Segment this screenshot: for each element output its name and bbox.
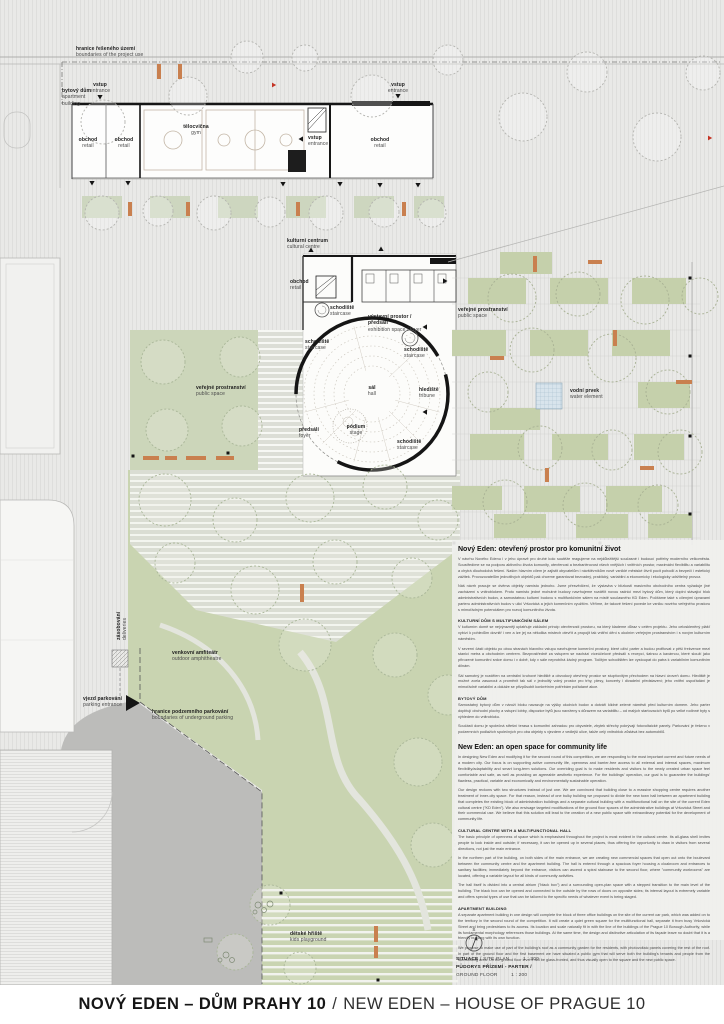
description-heading: BYTOVÝ DŮM [458,696,710,701]
plan-label-kids-playground: dětské hřištěkids playground [290,931,327,944]
existing-building-1 [0,258,60,454]
scale-line-site-plan: SITUACE / SITE PLAN 1 : 300 [456,957,596,962]
plan-label-underground-parking-boundary: hranice podzemního parkováníboundaries o… [152,709,233,722]
description-heading: KULTURNÍ DŮM S MULTIFUNKČNÍM SÁLEM [458,618,710,623]
plan-label-public-space-right: veřejné prostranstvípublic space [458,307,508,320]
plan-label-foyer: předsálífoyer [299,427,319,440]
description-paragraph: Sál samotný je rozdělen na centrální kru… [458,674,710,692]
description-heading: APARTMENT BUILDING [458,906,710,911]
scale-line-ground-floor-en: GROUND FLOOR 1 : 200 [456,973,596,978]
description-paragraph: The hall itself is divided into a centra… [458,883,710,901]
plan-label-stage: pódiumstage [347,424,366,437]
plaza-grid [448,186,724,545]
plan-label-entrance-top-right: vstupentrance [388,82,408,95]
plan-label-retail-1: obchodretail [79,137,98,150]
plan-label-gym: tělocvičnagym [183,124,208,137]
board-title-separator: / [332,995,337,1014]
plan-label-hall: sálhall [368,385,376,398]
plan-label-staircase-left: schodištěstaircase [305,339,329,352]
description-paragraph: V návrhu Nového Edenu i v jeho úpravě pr… [458,557,710,581]
description-paragraph: Náš návrh pracuje se dvěma objekty namís… [458,584,710,613]
project-description: Nový Eden: otevřený prostor pro komunitn… [458,546,710,967]
description-heading: CULTURAL CENTRE WITH A MULTIFUNCTIONAL H… [458,828,710,833]
scale-block: S SITUACE / SITE PLAN 1 : 300 PŮDORYS PŘ… [456,928,596,978]
description-paragraph: V kulturním domě se nejvýrazněji uplatňu… [458,625,710,643]
description-paragraph: Our design reckons with two structures i… [458,788,710,823]
grand-stairs [258,330,304,470]
plan-label-exhibition-space: výstavní prostor / předsálíexhibition sp… [368,314,430,333]
board-title-english: NEW EDEN – HOUSE OF PRAGUE 10 [343,995,645,1014]
plan-label-retail-3: obchodretail [371,137,390,150]
plan-label-project-boundary: hranice řešeného územíboundaries of the … [76,46,143,59]
cultural-centre-plan [303,254,456,476]
description-paragraph: Součástí domu je společná střešní terasa… [458,724,710,736]
plan-label-public-space-left: veřejné prostranstvípublic space [196,385,246,398]
plan-label-tribune: hledištětribune [419,387,439,400]
plan-label-staircase-spiral: schodištěstaircase [404,347,428,360]
description-heading: Nový Eden: otevřený prostor pro komunitn… [458,546,710,553]
plan-label-deliveries: zásobovánídeliveries [116,612,129,640]
description-paragraph: The basic principle of openness of space… [458,835,710,853]
north-arrow-icon: S [462,928,486,954]
board-title-bar: NOVÝ EDEN – DŮM PRAHY 10 / NEW EDEN – HO… [0,985,724,1024]
plan-label-staircase-top: schodištěstaircase [330,305,354,318]
plan-label-outdoor-amphitheatre: venkovní amfiteátroutdoor amphitheatre [172,650,222,663]
water-feature-icon [536,383,562,409]
plan-label-staircase-br: schodištěstaircase [397,439,421,452]
competition-board: hranice řešeného územíboundaries of the … [0,0,724,1024]
board-title-czech: NOVÝ EDEN – DŮM PRAHY 10 [79,995,327,1014]
plan-label-entrance-side: vstupentrance [308,135,328,148]
delivery-bay [112,650,128,667]
description-heading: New Eden: an open space for community li… [458,744,710,751]
description-paragraph: V severní části objektu po obou stranách… [458,647,710,671]
plan-label-retail-2: obchodretail [115,137,134,150]
north-letter: S [472,927,475,932]
plan-label-entrance-apartment: vstupentrance [90,82,110,95]
plan-label-water-element: vodní prvekwater element [570,388,603,401]
existing-building-3 [0,750,112,985]
plan-label-cultural-centre: kulturní centrumcultural centre [287,238,328,251]
scale-line-ground-floor-cz: PŮDORYS PŘÍZEMÍ - PARTER / [456,965,596,970]
plan-label-parking-entrance: vjezd parkováníparking entrance [58,696,122,709]
description-paragraph: Samostatný bytový dům v nároží bloku nav… [458,703,710,721]
description-paragraph: In designing New Eden and modifying it f… [458,755,710,784]
plan-label-retail-cc: obchodretail [290,279,309,292]
description-paragraph: In the northern part of the building, on… [458,856,710,880]
